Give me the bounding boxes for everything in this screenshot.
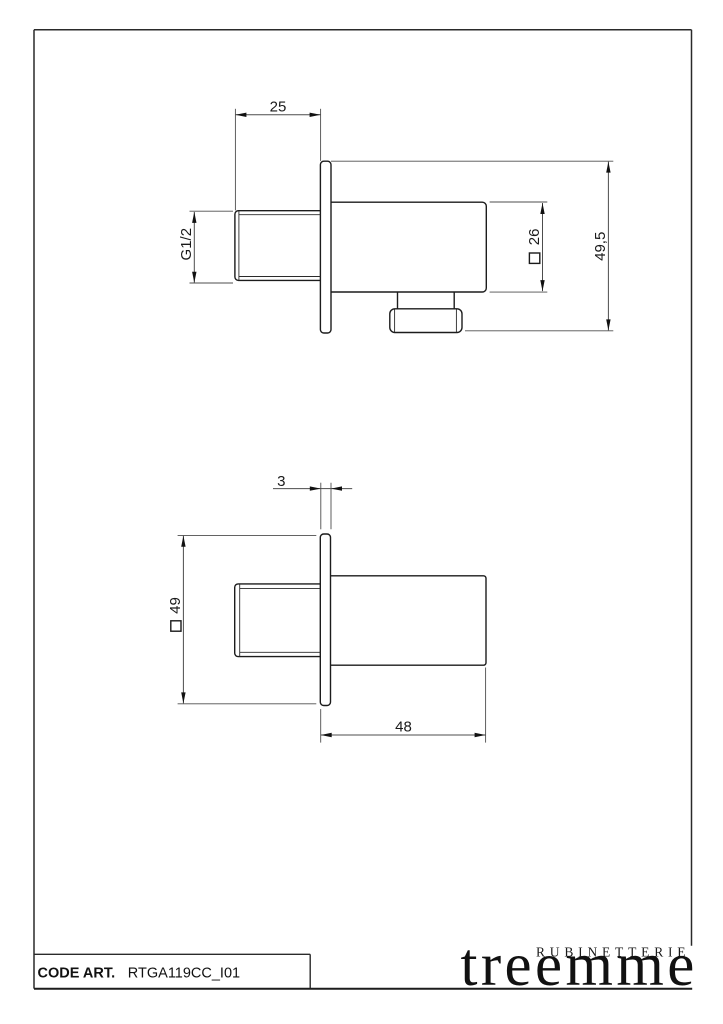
svg-text:25: 25 (270, 99, 287, 116)
svg-text:49,5: 49,5 (592, 232, 609, 261)
svg-text:26: 26 (526, 229, 543, 246)
svg-text:3: 3 (277, 473, 285, 490)
svg-text:48: 48 (395, 719, 412, 736)
svg-text:49: 49 (167, 597, 184, 614)
svg-text:CODE ART.: CODE ART. (38, 966, 116, 982)
svg-text:RTGA119CC_I01: RTGA119CC_I01 (128, 966, 240, 982)
svg-text:G1/2: G1/2 (178, 228, 195, 261)
svg-text:treemme: treemme (461, 932, 698, 999)
